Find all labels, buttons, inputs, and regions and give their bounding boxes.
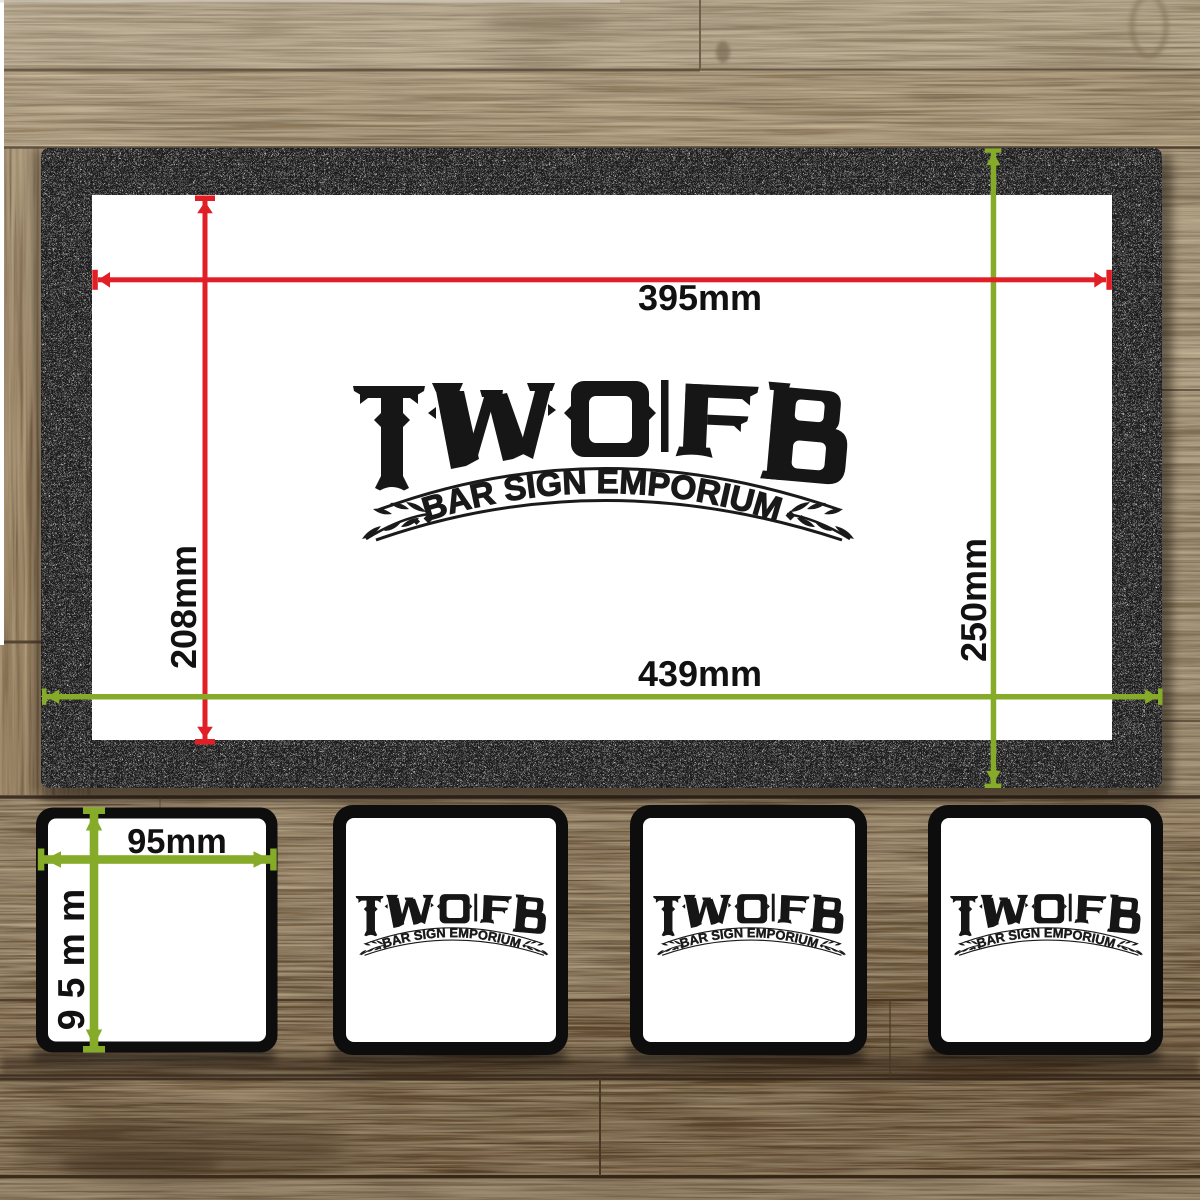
svg-text:208mm: 208mm xyxy=(163,545,204,669)
svg-text:95mm: 95mm xyxy=(127,823,227,861)
svg-text:439mm: 439mm xyxy=(638,653,762,694)
svg-text:95mm: 95mm xyxy=(50,878,92,1030)
svg-text:250mm: 250mm xyxy=(953,538,994,662)
svg-text:395mm: 395mm xyxy=(638,277,762,318)
